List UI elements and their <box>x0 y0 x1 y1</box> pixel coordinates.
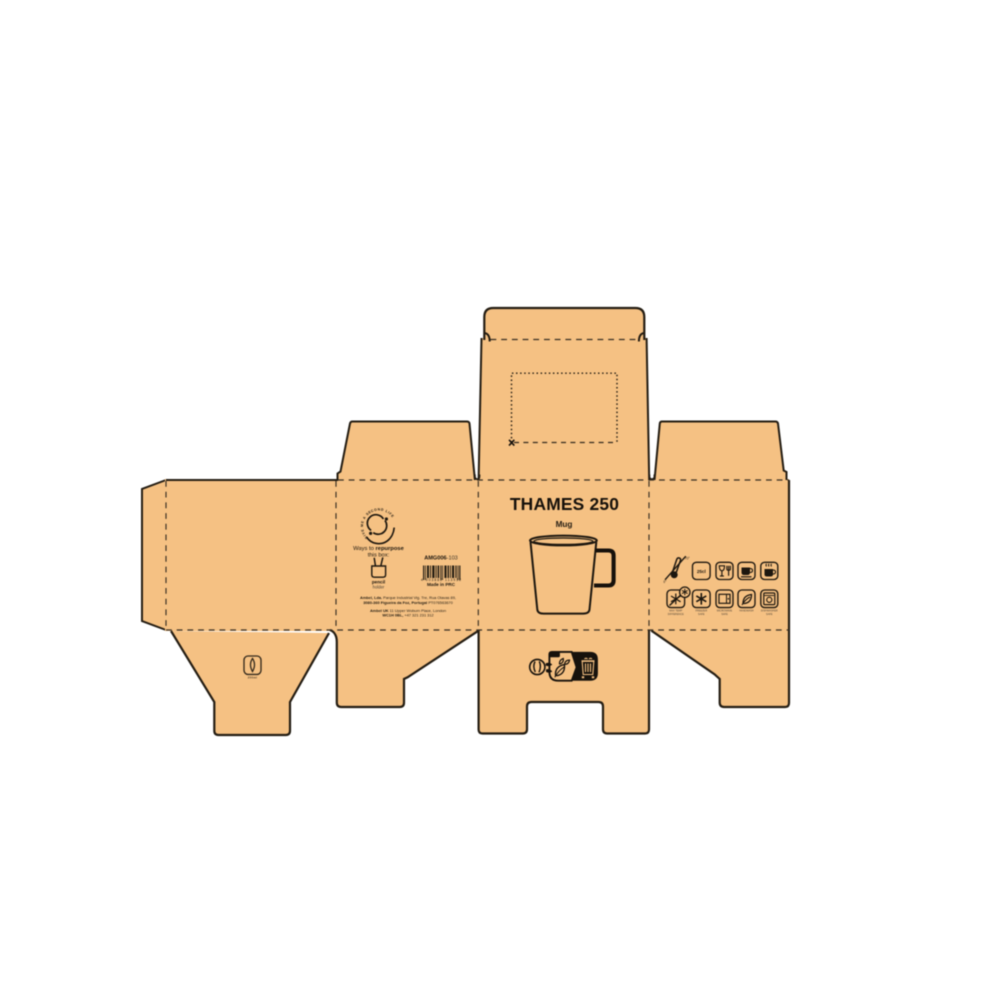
svg-text:HANDWASH: HANDWASH <box>739 610 754 613</box>
svg-text:AMG006-103: AMG006-103 <box>424 556 458 562</box>
svg-text:70°: 70° <box>685 557 691 561</box>
svg-text:WC1H 0BL, +47 321 231 312: WC1H 0BL, +47 321 231 312 <box>382 613 433 618</box>
svg-text:3080-360 Figueira da Foz, Port: 3080-360 Figueira da Foz, Portugal PT076… <box>363 600 453 605</box>
svg-text:Mug: Mug <box>556 520 573 529</box>
svg-text:SAFE: SAFE <box>698 613 705 616</box>
svg-text:SAFE: SAFE <box>721 613 728 616</box>
svg-text:DIFFERENCE: DIFFERENCE <box>668 613 684 616</box>
svg-text:250ml: 250ml <box>248 675 257 679</box>
svg-text:Ways to repurpose: Ways to repurpose <box>353 546 404 552</box>
svg-text:THAMES 250: THAMES 250 <box>510 494 619 514</box>
svg-text:25cl: 25cl <box>697 569 706 574</box>
svg-text:this box:: this box: <box>368 552 390 558</box>
svg-text:SAFE: SAFE <box>766 613 773 616</box>
svg-text:Made in PRC: Made in PRC <box>427 582 456 587</box>
svg-text:holder: holder <box>373 584 385 589</box>
